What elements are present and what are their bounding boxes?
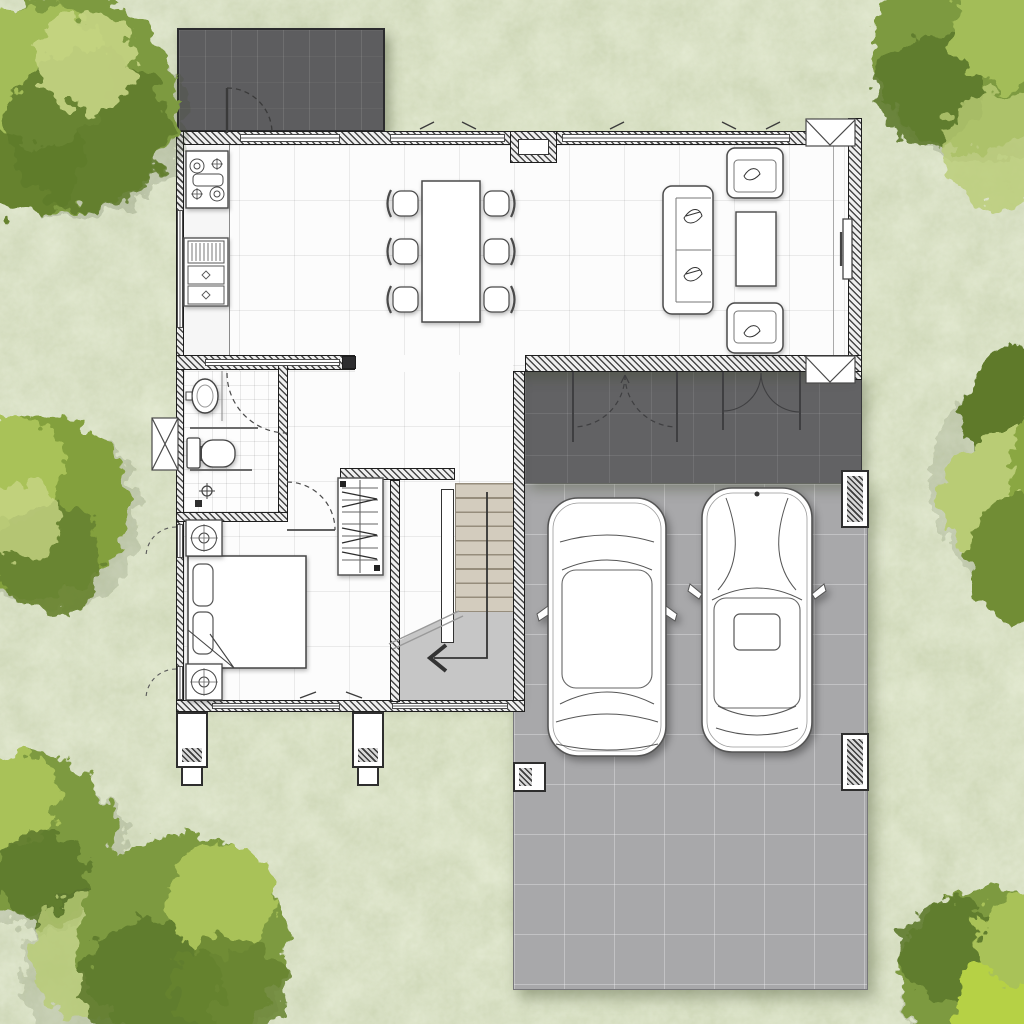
car-left: [537, 498, 677, 756]
washbasin: [186, 371, 222, 421]
porch-double-door-east: [723, 372, 800, 430]
nightstand-south: [186, 664, 222, 700]
site-plan-canvas: { "scene": { "type": "architectural-floo…: [0, 0, 1024, 1024]
sofa: [663, 186, 713, 314]
stair-direction-arrow: [430, 492, 487, 671]
bedroom-door: [287, 482, 335, 530]
shower-fixture: [195, 483, 215, 507]
armchair-north: [727, 148, 783, 198]
armchair-south: [727, 303, 783, 353]
porch-double-door-west: [573, 372, 677, 442]
casement-swing-arcs: [146, 527, 176, 699]
stair-break-line: [389, 611, 463, 649]
bathroom-door: [227, 373, 287, 433]
sink-unit: [184, 238, 228, 306]
double-bed: [188, 556, 306, 668]
stove: [186, 151, 228, 208]
car-right: [688, 488, 826, 752]
nightstand-north: [186, 520, 222, 556]
tv-wall-mounted: [841, 219, 852, 279]
dining-table: [422, 181, 480, 322]
toilet: [187, 438, 235, 468]
plan-linework: [0, 0, 1024, 1024]
wardrobe-closet: [338, 478, 383, 575]
patio-door: [227, 88, 272, 133]
coffee-table: [736, 212, 776, 286]
